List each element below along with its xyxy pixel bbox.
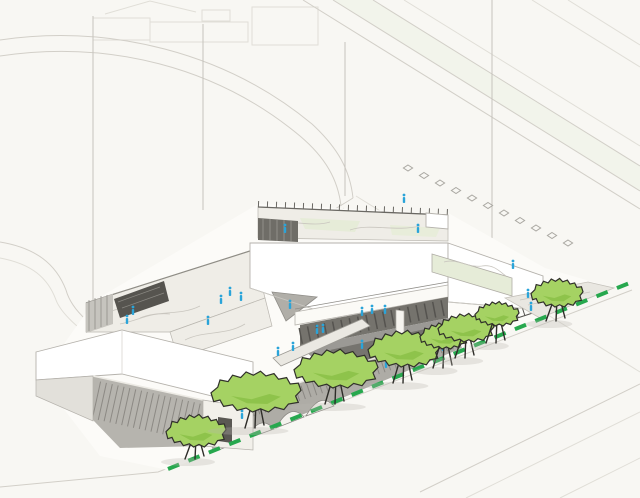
roof-plant-room bbox=[426, 213, 448, 229]
site-rendering bbox=[0, 0, 640, 498]
pedestrian-figure bbox=[289, 300, 292, 309]
pedestrian-figure bbox=[384, 305, 387, 314]
pedestrian-figure bbox=[132, 306, 135, 315]
pedestrian-figure bbox=[361, 340, 364, 349]
pedestrian-figure bbox=[527, 289, 530, 298]
pedestrian-figure bbox=[371, 305, 374, 314]
pedestrian-figure bbox=[284, 224, 287, 233]
pedestrian-figure bbox=[126, 315, 129, 324]
pedestrian-figure bbox=[292, 342, 295, 351]
pedestrian-figure bbox=[361, 307, 364, 316]
pedestrian-figure bbox=[229, 287, 232, 296]
pedestrian-figure bbox=[512, 260, 515, 269]
pedestrian-figure bbox=[322, 324, 325, 333]
pedestrian-figure bbox=[207, 316, 210, 325]
pedestrian-figure bbox=[417, 224, 420, 233]
pedestrian-figure bbox=[277, 347, 280, 356]
pedestrian-figure bbox=[403, 194, 406, 203]
pedestrian-figure bbox=[240, 292, 243, 301]
pedestrian-figure bbox=[316, 325, 319, 334]
pedestrian-figure bbox=[241, 410, 244, 419]
pedestrian-figure bbox=[530, 302, 533, 311]
roof-garden-louver-wall bbox=[258, 218, 298, 242]
pedestrian-figure bbox=[220, 295, 223, 304]
